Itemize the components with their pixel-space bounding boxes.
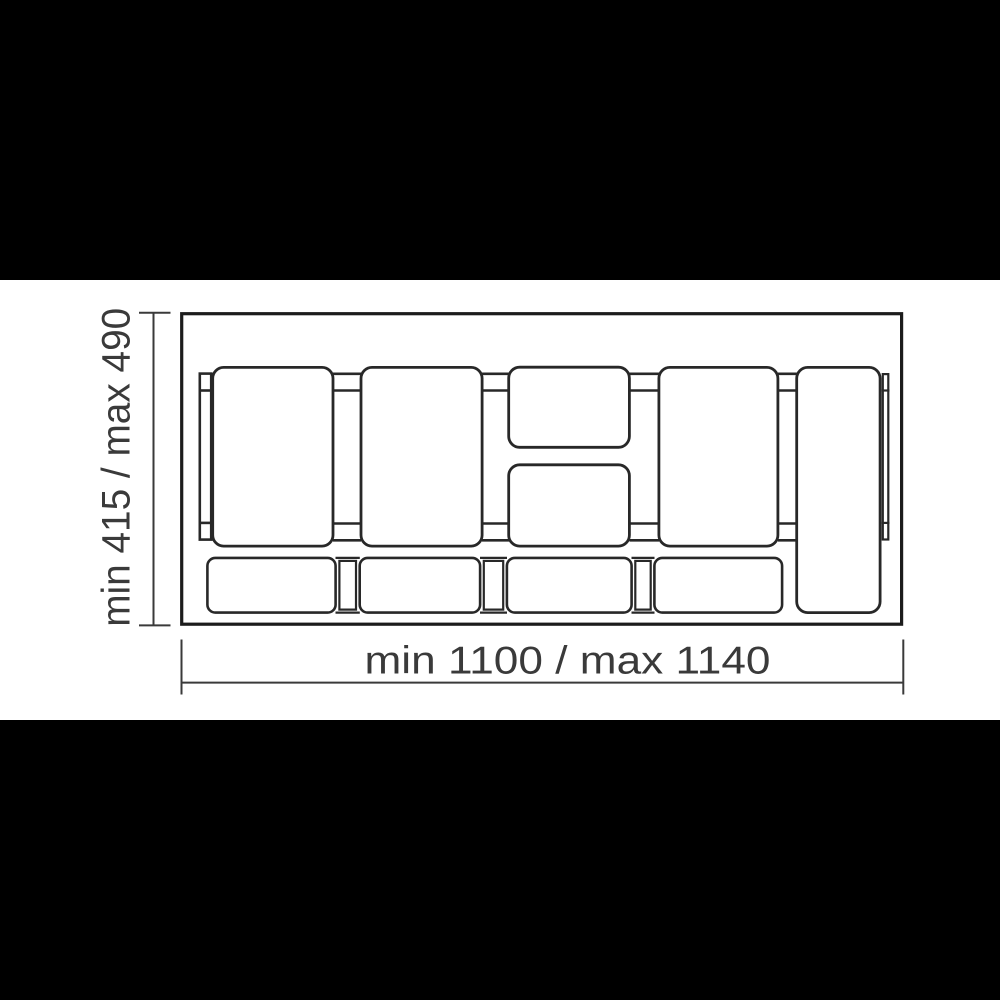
- svg-text:min 1100 / max 1140: min 1100 / max 1140: [365, 640, 771, 683]
- svg-text:min 415 / max 490: min 415 / max 490: [95, 308, 139, 627]
